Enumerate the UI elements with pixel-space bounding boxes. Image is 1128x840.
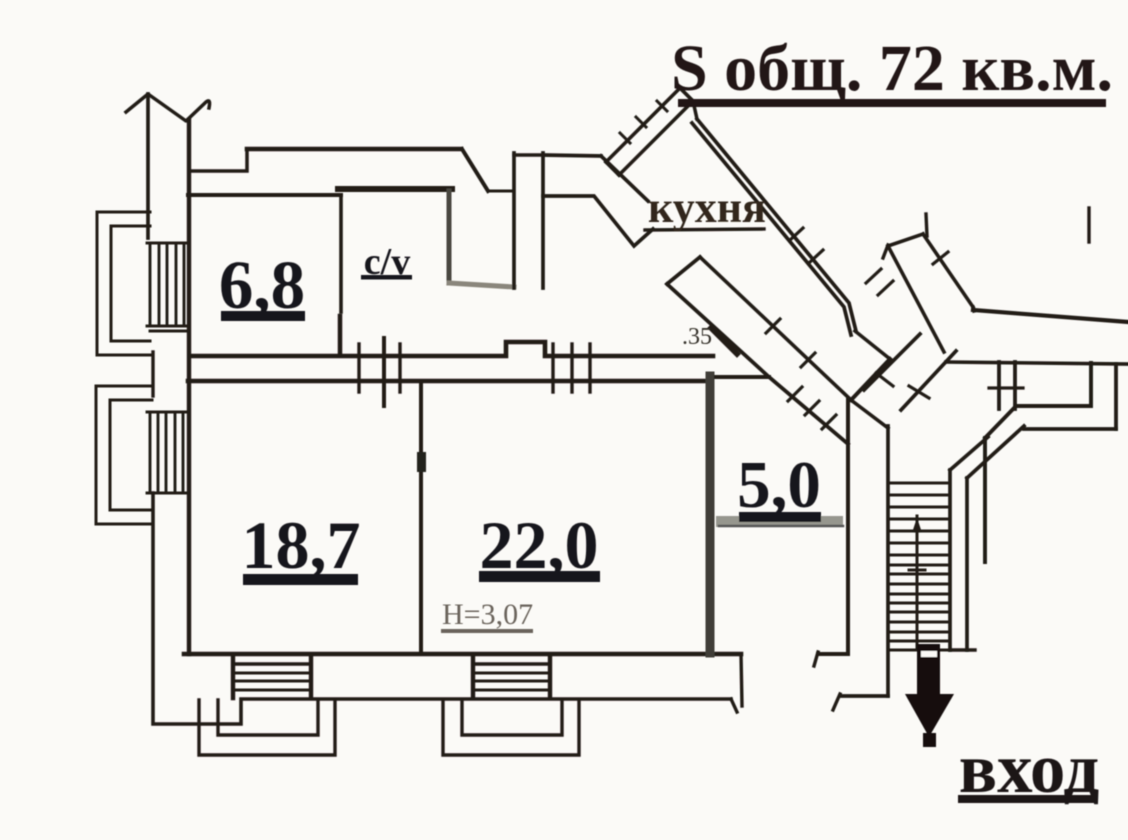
svg-text:Н=3,07: Н=3,07 bbox=[442, 598, 533, 631]
svg-text:.35: .35 bbox=[682, 324, 712, 350]
svg-text:18,7: 18,7 bbox=[242, 507, 361, 583]
svg-text:5,0: 5,0 bbox=[737, 448, 821, 522]
svg-text:S общ. 72 кв.м.: S общ. 72 кв.м. bbox=[671, 32, 1113, 105]
svg-text:кухня: кухня bbox=[648, 183, 766, 232]
